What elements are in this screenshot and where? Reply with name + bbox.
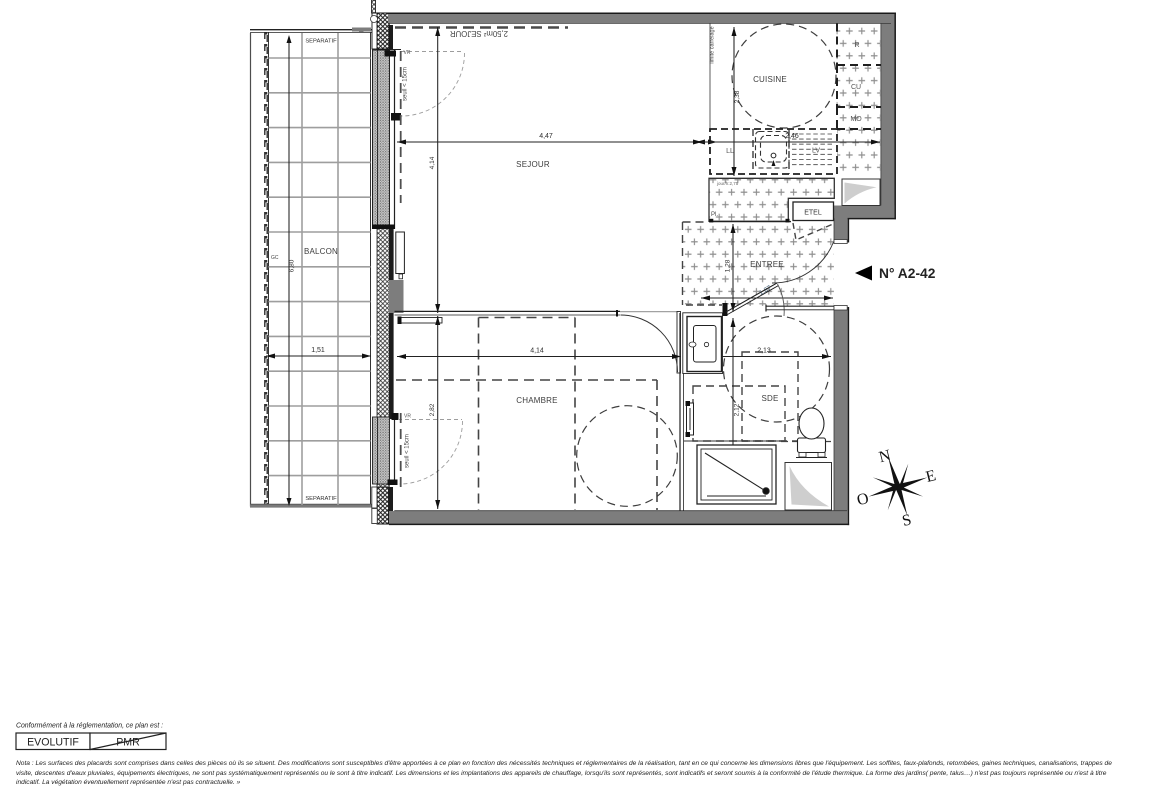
svg-text:2,12: 2,12 <box>734 403 741 416</box>
svg-text:4,14: 4,14 <box>530 348 544 355</box>
svg-text:2,46: 2,46 <box>785 133 799 140</box>
svg-text:VR: VR <box>404 50 411 56</box>
svg-text:SEPARATIF: SEPARATIF <box>305 39 337 45</box>
svg-text:1,28: 1,28 <box>725 259 732 272</box>
svg-text:2,82: 2,82 <box>429 403 436 416</box>
svg-text:Conformément à la réglementati: Conformément à la réglementation, ce pla… <box>16 723 163 730</box>
svg-text:2,13: 2,13 <box>757 348 771 355</box>
svg-text:EVOLUTIF: EVOLUTIF <box>27 737 79 749</box>
svg-text:4,47: 4,47 <box>539 133 553 140</box>
svg-text:R: R <box>854 42 859 49</box>
svg-text:ENTREE: ENTREE <box>750 260 784 269</box>
svg-text:seuil < 15cm: seuil < 15cm <box>403 67 409 101</box>
svg-text:Nota : Les surfaces des placar: Nota : Les surfaces des placards sont co… <box>16 760 1112 767</box>
svg-text:visite, descentes d'eaux pluvi: visite, descentes d'eaux pluviales, équi… <box>16 770 1107 777</box>
svg-text:BALCON: BALCON <box>304 247 338 256</box>
svg-text:LV: LV <box>812 148 820 155</box>
svg-text:Pl.: Pl. <box>711 212 718 218</box>
svg-text:seuil < 15cm: seuil < 15cm <box>405 434 411 468</box>
svg-text:jour/h:2,75: jour/h:2,75 <box>716 181 739 186</box>
svg-text:SEJOUR: SEJOUR <box>516 160 550 169</box>
svg-text:SEPARATIF: SEPARATIF <box>305 496 337 502</box>
svg-text:VR: VR <box>404 414 411 420</box>
svg-text:1,51: 1,51 <box>311 347 325 354</box>
svg-text:4,14: 4,14 <box>429 156 436 169</box>
svg-text:ETEL: ETEL <box>804 210 822 217</box>
svg-text:LL: LL <box>726 148 734 155</box>
svg-text:limite carrelage: limite carrelage <box>710 26 716 63</box>
svg-text:N° A2-42: N° A2-42 <box>879 266 936 281</box>
svg-text:MO: MO <box>850 116 862 123</box>
svg-text:CHAMBRE: CHAMBRE <box>516 396 557 405</box>
svg-text:indicatif. La végétation évent: indicatif. La végétation éventuellement … <box>16 779 241 786</box>
svg-text:CUISINE: CUISINE <box>753 75 787 84</box>
svg-text:CU: CU <box>851 84 861 91</box>
svg-text:SDE: SDE <box>761 394 778 403</box>
svg-text:6,80: 6,80 <box>289 259 296 272</box>
svg-text:2,38: 2,38 <box>734 90 741 103</box>
svg-text:2,50m² SEJOUR: 2,50m² SEJOUR <box>450 29 508 38</box>
svg-text:GC: GC <box>271 255 279 261</box>
